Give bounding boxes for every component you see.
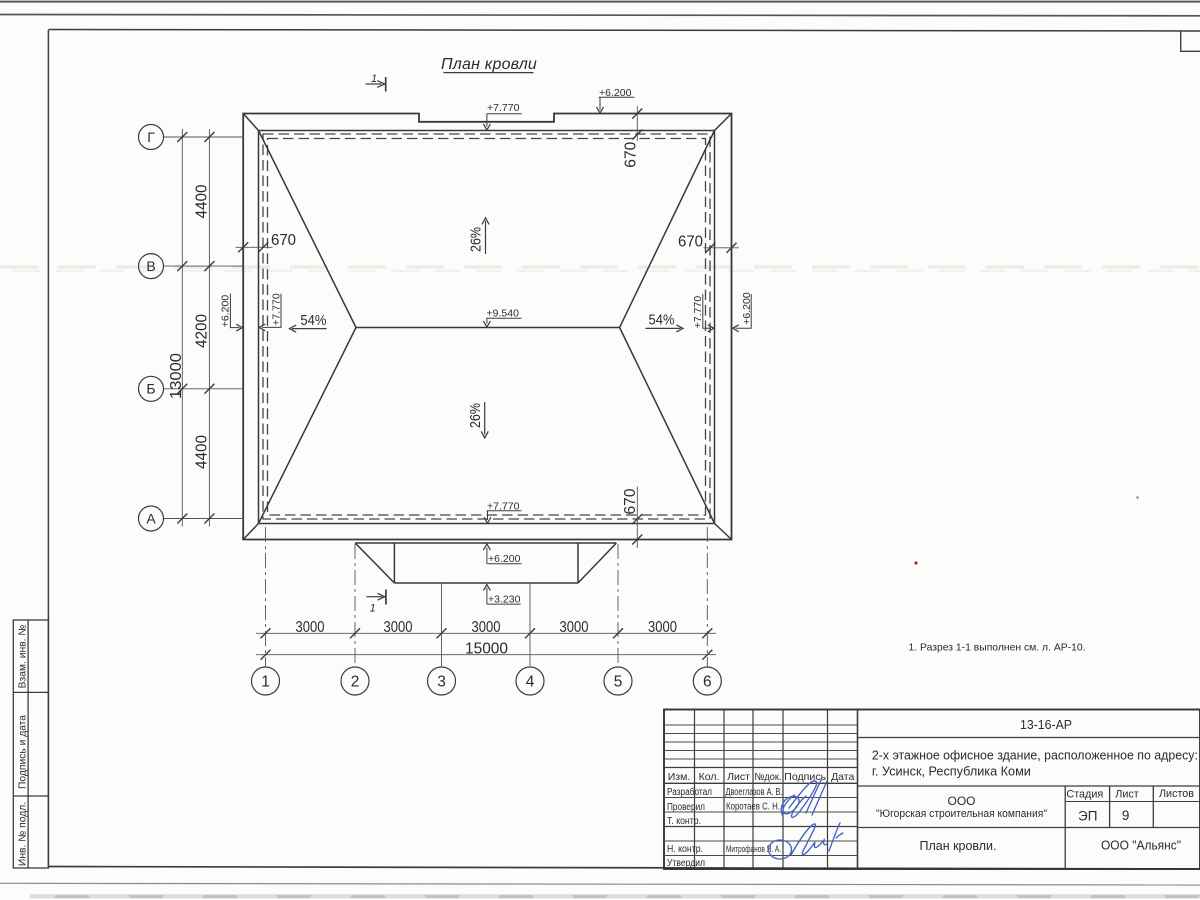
svg-text:ООО "Альянс": ООО "Альянс": [1101, 837, 1181, 852]
svg-text:Двоеглазов А. В.: Двоеглазов А. В.: [726, 787, 783, 798]
svg-text:4400: 4400: [193, 184, 210, 218]
svg-text:1. Разрез 1-1 выполнен см. л.: 1. Разрез 1-1 выполнен см. л. АР-10.: [909, 641, 1086, 653]
svg-text:670: 670: [622, 142, 639, 168]
svg-text:670: 670: [678, 233, 703, 250]
svg-text:26%: 26%: [468, 227, 484, 252]
svg-text:1: 1: [370, 603, 376, 615]
svg-text:Изм.: Изм.: [668, 771, 691, 783]
svg-text:+6.200: +6.200: [488, 553, 521, 565]
svg-text:Митрофанов Я. А.: Митрофанов Я. А.: [726, 844, 781, 855]
svg-text:Листов: Листов: [1159, 788, 1194, 800]
svg-text:Кол.: Кол.: [699, 771, 720, 783]
svg-text:3000: 3000: [296, 619, 325, 636]
svg-text:Подпись и дата: Подпись и дата: [18, 715, 29, 789]
svg-text:9: 9: [1122, 808, 1130, 823]
svg-text:Взам. инв. №: Взам. инв. №: [18, 625, 29, 689]
svg-text:Дата: Дата: [831, 771, 854, 783]
svg-text:26%: 26%: [468, 403, 484, 428]
svg-text:15000: 15000: [465, 640, 508, 657]
svg-text:"Югорская строительная компани: "Югорская строительная компания": [876, 808, 1047, 820]
svg-text:+7.770: +7.770: [487, 102, 520, 114]
svg-text:Инв. № подл.: Инв. № подл.: [18, 802, 29, 866]
svg-text:2-х этажное офисное здание, ра: 2-х этажное офисное здание, расположенно…: [872, 748, 1198, 763]
svg-text:3000: 3000: [472, 619, 501, 636]
svg-text:План кровли.: План кровли.: [920, 838, 997, 853]
svg-text:54%: 54%: [649, 312, 675, 328]
svg-text:+9.540: +9.540: [487, 307, 520, 319]
svg-text:13-16-АР: 13-16-АР: [1020, 717, 1072, 732]
svg-text:3: 3: [437, 673, 446, 690]
svg-text:Утвердил: Утвердил: [667, 858, 705, 869]
svg-text:5: 5: [614, 673, 623, 690]
svg-text:670: 670: [622, 488, 639, 514]
svg-text:3000: 3000: [648, 619, 677, 636]
svg-text:Коротаев С. Н.: Коротаев С. Н.: [726, 802, 780, 813]
svg-text:4400: 4400: [193, 435, 210, 469]
svg-text:670: 670: [271, 232, 296, 249]
svg-text:Разработал: Разработал: [667, 787, 712, 798]
svg-text:Стадия: Стадия: [1066, 789, 1103, 801]
svg-text:План кровли: План кровли: [441, 56, 537, 73]
svg-text:А: А: [146, 510, 156, 526]
svg-text:2: 2: [351, 673, 360, 690]
svg-text:Проверил: Проверил: [667, 802, 705, 813]
svg-text:Лист: Лист: [1115, 789, 1139, 801]
svg-text:4200: 4200: [193, 314, 210, 348]
svg-text:+6.200: +6.200: [219, 295, 231, 328]
svg-text:+7.770: +7.770: [692, 296, 704, 329]
svg-text:Б: Б: [146, 381, 155, 397]
svg-text:3000: 3000: [384, 619, 413, 636]
svg-text:1: 1: [371, 73, 377, 85]
svg-text:4: 4: [526, 673, 535, 690]
svg-text:Н. контр.: Н. контр.: [667, 844, 703, 855]
svg-text:Лист: Лист: [727, 771, 750, 783]
svg-text:ООО: ООО: [947, 794, 975, 808]
svg-text:В: В: [146, 258, 155, 274]
svg-text:3000: 3000: [560, 619, 589, 636]
svg-text:6: 6: [703, 673, 712, 690]
svg-text:ЭП: ЭП: [1078, 809, 1097, 824]
svg-text:№док.: №док.: [755, 771, 782, 783]
svg-text:Т. контр.: Т. контр.: [667, 816, 701, 827]
svg-text:1: 1: [261, 673, 270, 690]
svg-text:13000: 13000: [168, 353, 185, 399]
svg-text:54%: 54%: [300, 313, 326, 329]
svg-text:Г: Г: [147, 129, 155, 145]
svg-text:г. Усинск, Республика Коми: г. Усинск, Республика Коми: [872, 763, 1031, 778]
